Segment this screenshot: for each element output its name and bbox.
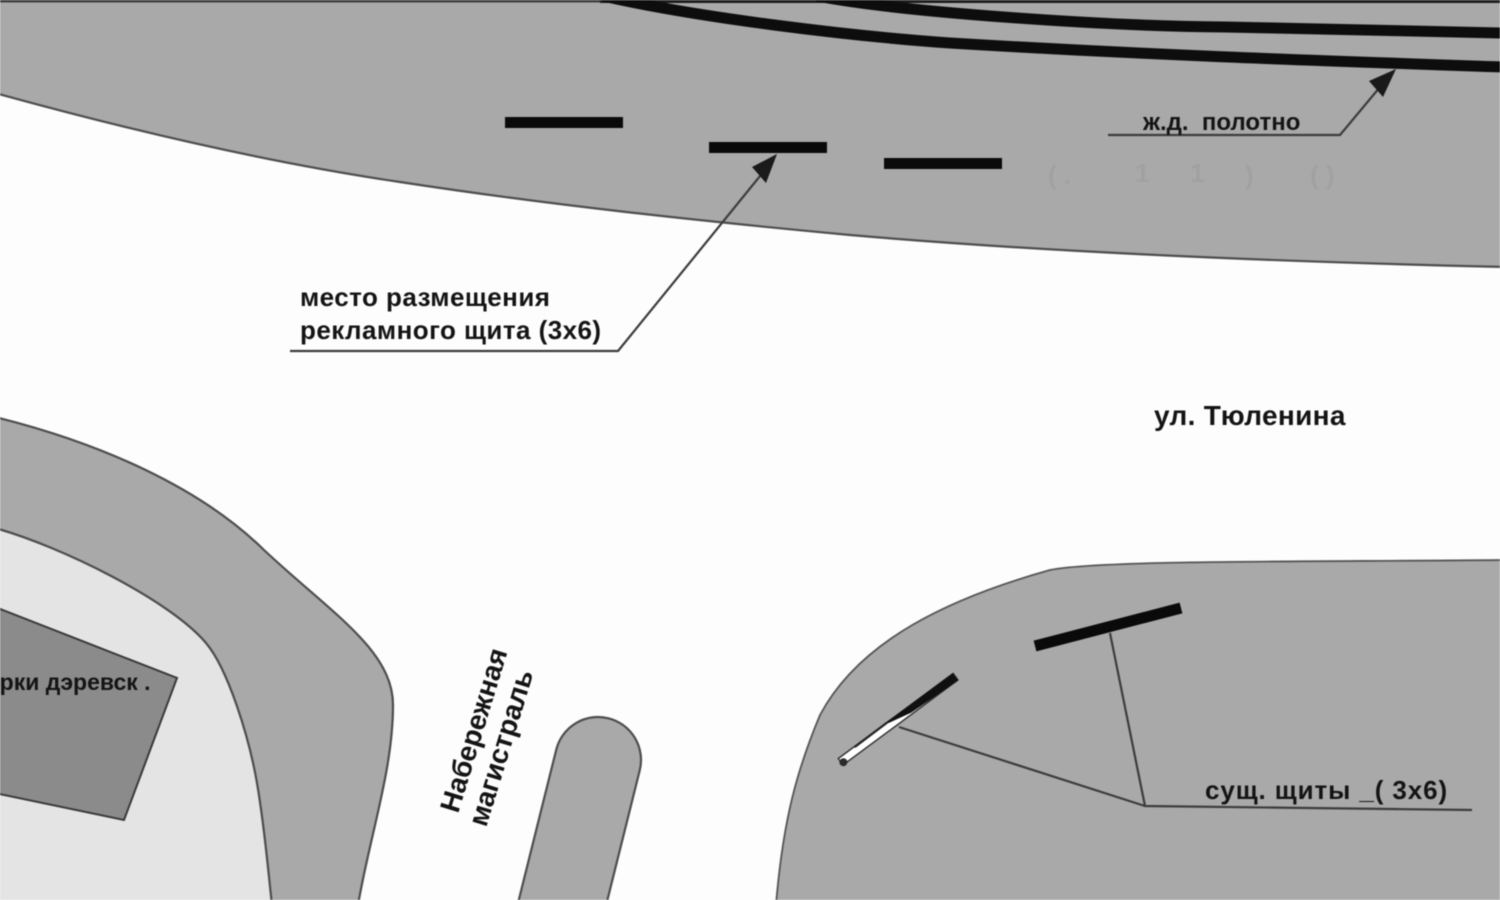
- svg-text:ул. Тюленина: ул. Тюленина: [1154, 400, 1346, 431]
- svg-text:сущ. щиты _( 3х6): сущ. щиты _( 3х6): [1205, 775, 1448, 805]
- svg-text:ж.д. полотно: ж.д. полотно: [1142, 109, 1300, 136]
- svg-text:рекламного щита (3х6): рекламного щита (3х6): [300, 315, 602, 345]
- svg-text:ырки дэревск .: ырки дэревск .: [0, 669, 151, 695]
- svg-text:1: 1: [1190, 158, 1204, 188]
- svg-text:( .: ( .: [1048, 160, 1071, 190]
- svg-text:место размещения: место размещения: [300, 282, 550, 312]
- svg-text:1: 1: [1135, 158, 1149, 188]
- svg-text:): ): [1245, 160, 1254, 190]
- svg-text:( ): ( ): [1310, 160, 1335, 190]
